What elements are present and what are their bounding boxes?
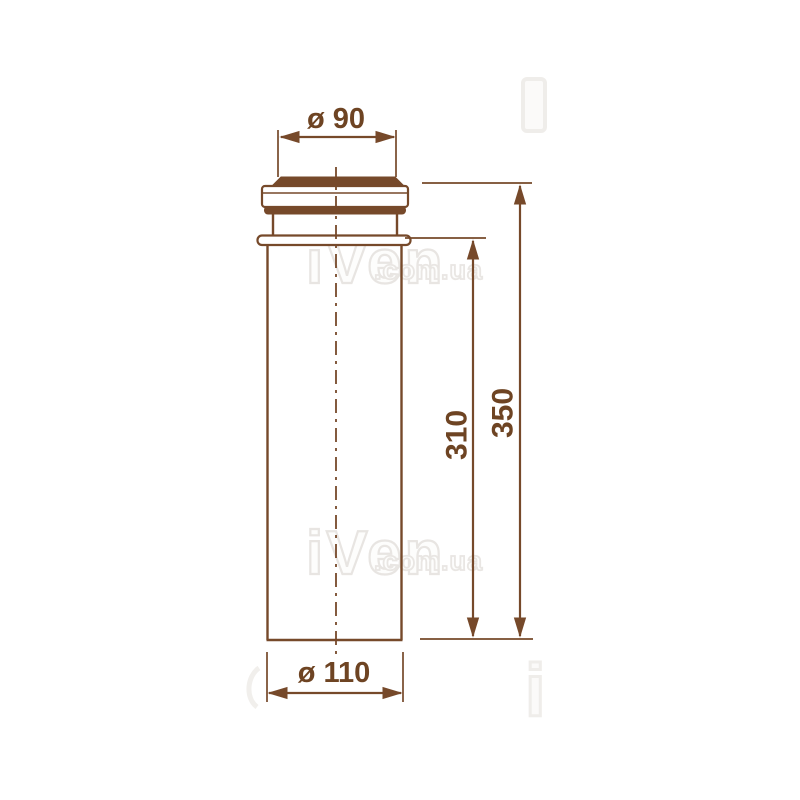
dim-label-body-height: 310 — [441, 410, 474, 460]
watermark-fragment-bar — [523, 79, 545, 131]
dimension-top-diameter: ø 90 — [278, 103, 396, 177]
socket-gasket-top-ring — [272, 177, 404, 186]
dim-arrow-up — [468, 241, 479, 259]
watermark-fragment-letter: i — [525, 649, 546, 732]
watermark-domain-text: .com.ua — [374, 546, 483, 576]
dim-arrow-left — [269, 688, 287, 699]
dim-arrow-down — [468, 618, 479, 636]
dim-arrow-right — [383, 688, 401, 699]
dim-label-top-diameter: ø 90 — [307, 103, 365, 135]
watermark-instance-2: iVen .com.ua — [306, 519, 483, 588]
dim-arrow-right — [376, 132, 394, 143]
socket-gasket-lower-ring — [265, 207, 406, 215]
socket-body — [262, 186, 408, 207]
dim-label-overall-height: 350 — [487, 388, 520, 438]
dim-arrow-left — [281, 132, 299, 143]
watermark-fragment-arc — [249, 668, 259, 707]
socket-flare-ring — [258, 236, 411, 246]
dim-arrow-up — [515, 186, 526, 204]
dim-label-bottom-diameter: ø 110 — [298, 657, 371, 689]
dim-arrow-down — [515, 618, 526, 636]
dimension-bottom-diameter: ø 110 — [267, 652, 403, 702]
watermark-domain-text: .com.ua — [374, 255, 483, 285]
pipe-drawing-canvas: iVen .com.ua iVen .com.ua i — [0, 0, 800, 800]
pipe-technical-drawing: iVen .com.ua iVen .com.ua i — [0, 0, 800, 800]
